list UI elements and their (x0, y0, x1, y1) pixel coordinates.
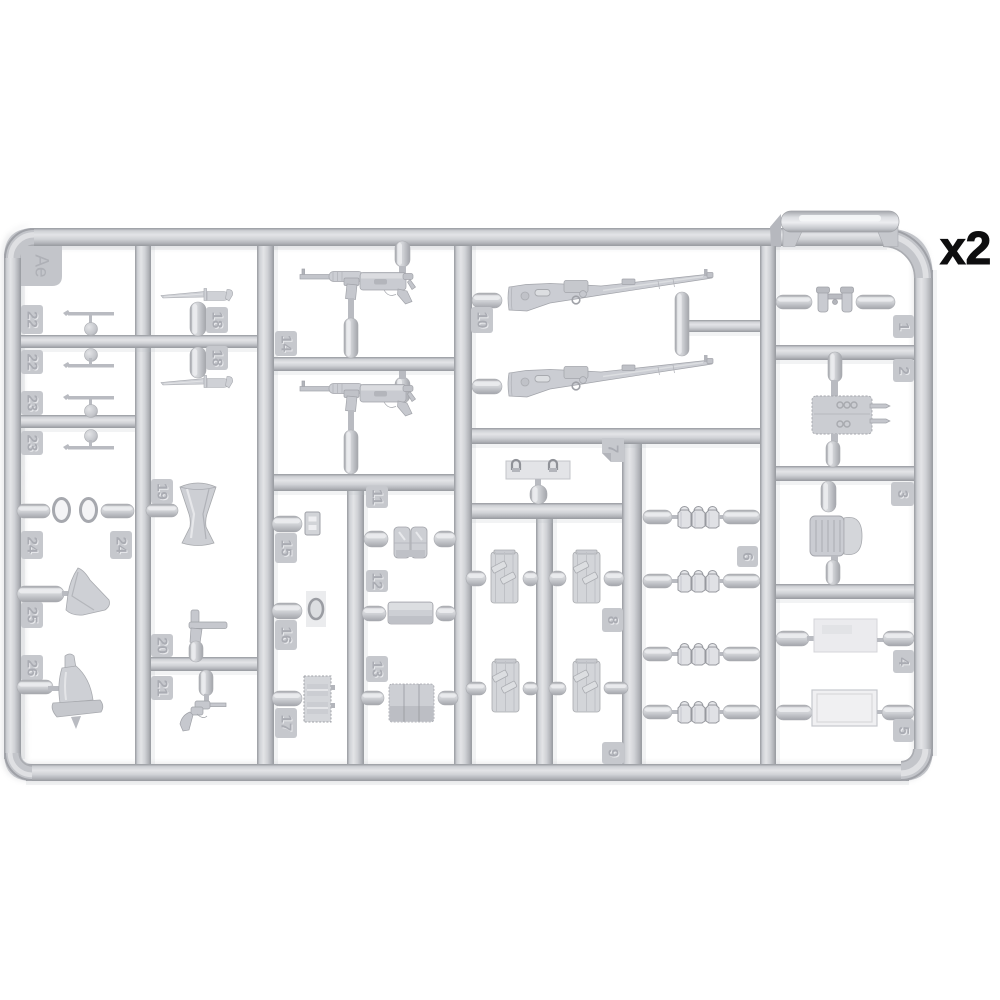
svg-text:24: 24 (24, 537, 41, 554)
svg-text:11: 11 (369, 489, 386, 505)
svg-text:18: 18 (209, 312, 226, 329)
svg-text:23: 23 (24, 435, 41, 452)
svg-text:9: 9 (605, 749, 622, 757)
svg-text:26: 26 (24, 660, 41, 677)
svg-text:13: 13 (369, 661, 386, 678)
svg-text:2: 2 (895, 366, 912, 374)
svg-text:22: 22 (24, 311, 41, 328)
svg-text:14: 14 (278, 335, 295, 352)
svg-text:23: 23 (24, 395, 41, 412)
svg-text:4: 4 (895, 657, 912, 666)
svg-text:6: 6 (739, 552, 756, 560)
svg-text:19: 19 (154, 483, 171, 500)
svg-text:15: 15 (278, 540, 295, 557)
svg-text:25: 25 (24, 607, 41, 624)
svg-text:3: 3 (894, 490, 911, 498)
svg-text:5: 5 (895, 726, 912, 734)
svg-text:20: 20 (154, 637, 171, 654)
svg-text:8: 8 (604, 616, 621, 624)
svg-text:7: 7 (605, 445, 622, 453)
svg-text:x2: x2 (940, 222, 991, 274)
svg-text:21: 21 (154, 680, 171, 697)
svg-text:22: 22 (24, 354, 41, 371)
svg-text:Ae: Ae (31, 254, 52, 277)
svg-text:12: 12 (369, 573, 386, 590)
svg-text:1: 1 (895, 322, 912, 330)
svg-text:17: 17 (278, 715, 295, 732)
svg-text:16: 16 (278, 627, 295, 644)
svg-text:10: 10 (474, 312, 491, 329)
svg-text:18: 18 (209, 350, 226, 367)
svg-text:24: 24 (113, 537, 130, 554)
